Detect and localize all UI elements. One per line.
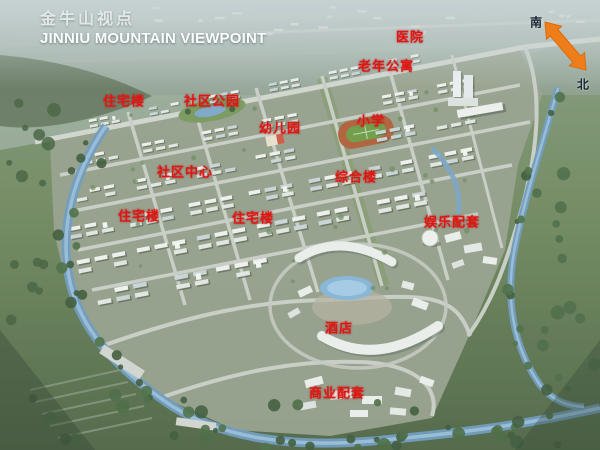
map-label-7: 综合楼 xyxy=(335,167,377,186)
map-label-11: 酒店 xyxy=(325,318,353,337)
viewpoint-title: 金牛山视点 JINNIU MOUNTAIN VIEWPOINT xyxy=(40,5,266,47)
map-label-10: 娱乐配套 xyxy=(424,212,480,231)
map-label-4: 幼儿园 xyxy=(259,118,301,137)
title-english: JINNIU MOUNTAIN VIEWPOINT xyxy=(40,30,266,47)
color-cast xyxy=(0,0,600,450)
map-label-9: 住宅楼 xyxy=(232,208,274,227)
map-label-2: 住宅楼 xyxy=(103,91,145,110)
title-chinese: 金牛山视点 xyxy=(40,5,266,29)
compass-north-label: 北 xyxy=(577,76,589,93)
map-label-6: 社区中心 xyxy=(157,162,213,181)
map-label-1: 老年公寓 xyxy=(358,56,414,75)
rendered-map xyxy=(0,0,600,450)
map-label-0: 医院 xyxy=(396,27,424,46)
map-label-8: 住宅楼 xyxy=(118,206,160,225)
map-label-12: 商业配套 xyxy=(309,383,365,402)
compass-south-label: 南 xyxy=(530,14,542,31)
map-label-3: 社区公园 xyxy=(184,91,240,110)
aerial-rendering: 金牛山视点 JINNIU MOUNTAIN VIEWPOINT 南 北 医院老年… xyxy=(0,0,600,450)
map-label-5: 小学 xyxy=(357,111,385,130)
